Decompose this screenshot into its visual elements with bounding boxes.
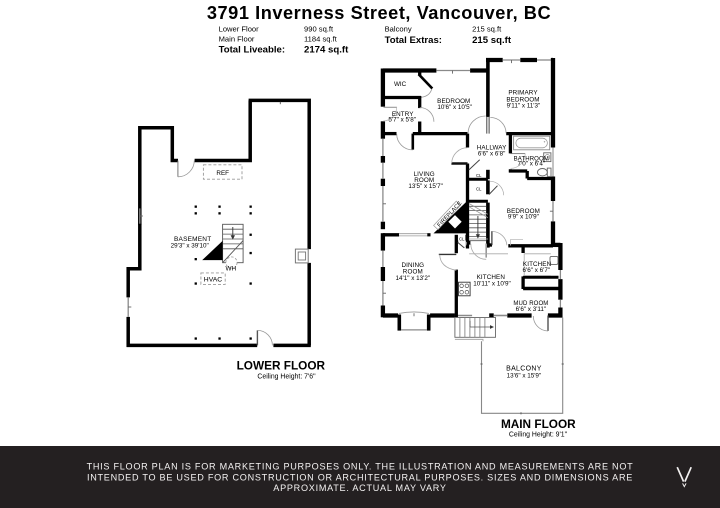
svg-text:215 sq.ft: 215 sq.ft: [472, 25, 502, 34]
svg-text:990 sq.ft: 990 sq.ft: [304, 25, 334, 34]
svg-text:29'3" x 39'10": 29'3" x 39'10": [171, 243, 209, 250]
svg-text:6'6" x 6'7": 6'6" x 6'7": [523, 267, 551, 274]
svg-text:10'11" x 10'9": 10'11" x 10'9": [473, 280, 511, 287]
svg-text:REF: REF: [216, 170, 229, 177]
svg-text:Main Floor: Main Floor: [219, 34, 255, 43]
svg-text:INTENDED TO BE USED FOR CONSTR: INTENDED TO BE USED FOR CONSTRUCTION OR …: [87, 472, 633, 482]
svg-text:9'11" x 11'3": 9'11" x 11'3": [507, 103, 541, 110]
svg-text:1184 sq.ft: 1184 sq.ft: [304, 34, 338, 43]
svg-text:CL: CL: [476, 173, 482, 178]
svg-text:HVAC: HVAC: [204, 276, 222, 283]
svg-text:13'6" x 15'9": 13'6" x 15'9": [507, 373, 542, 380]
svg-text:WIC: WIC: [394, 81, 407, 88]
svg-text:6'6" x 6'8": 6'6" x 6'8": [478, 150, 506, 157]
svg-text:CL: CL: [476, 187, 482, 192]
svg-text:Ceiling Height: 9'1": Ceiling Height: 9'1": [509, 431, 568, 438]
svg-text:PRIMARY: PRIMARY: [508, 89, 538, 96]
svg-text:13'5" x 15'7": 13'5" x 15'7": [408, 183, 443, 190]
svg-text:7'0" x 6'4": 7'0" x 6'4": [518, 161, 546, 168]
svg-text:3791 Inverness Street, Vancouv: 3791 Inverness Street, Vancouver, BC: [207, 3, 551, 23]
svg-text:CL: CL: [459, 236, 465, 241]
svg-text:THIS FLOOR PLAN IS FOR MARKETI: THIS FLOOR PLAN IS FOR MARKETING PURPOSE…: [87, 462, 634, 472]
svg-text:Lower Floor: Lower Floor: [219, 25, 260, 34]
svg-text:5'7" x 5'8": 5'7" x 5'8": [388, 117, 416, 124]
svg-text:MAIN FLOOR: MAIN FLOOR: [501, 417, 576, 431]
svg-text:Total Liveable:: Total Liveable:: [219, 44, 285, 55]
svg-text:Total Extras:: Total Extras:: [385, 35, 442, 46]
svg-text:BALCONY: BALCONY: [506, 365, 542, 372]
svg-text:WH: WH: [225, 266, 236, 273]
svg-text:6'6" x 3'11": 6'6" x 3'11": [516, 306, 547, 313]
svg-text:215 sq.ft: 215 sq.ft: [472, 35, 512, 46]
svg-text:9'9" x 10'9": 9'9" x 10'9": [508, 214, 539, 221]
svg-text:14'1" x 13'2": 14'1" x 13'2": [396, 275, 431, 282]
svg-text:APPROXIMATE. ACTUAL MAY VARY: APPROXIMATE. ACTUAL MAY VARY: [273, 483, 446, 493]
svg-text:Ceiling Height: 7'6": Ceiling Height: 7'6": [257, 374, 316, 381]
svg-text:10'6" x 10'5": 10'6" x 10'5": [437, 104, 472, 111]
svg-text:2174 sq.ft: 2174 sq.ft: [304, 44, 349, 55]
svg-text:LOWER FLOOR: LOWER FLOOR: [237, 359, 326, 373]
svg-text:Balcony: Balcony: [385, 25, 412, 34]
